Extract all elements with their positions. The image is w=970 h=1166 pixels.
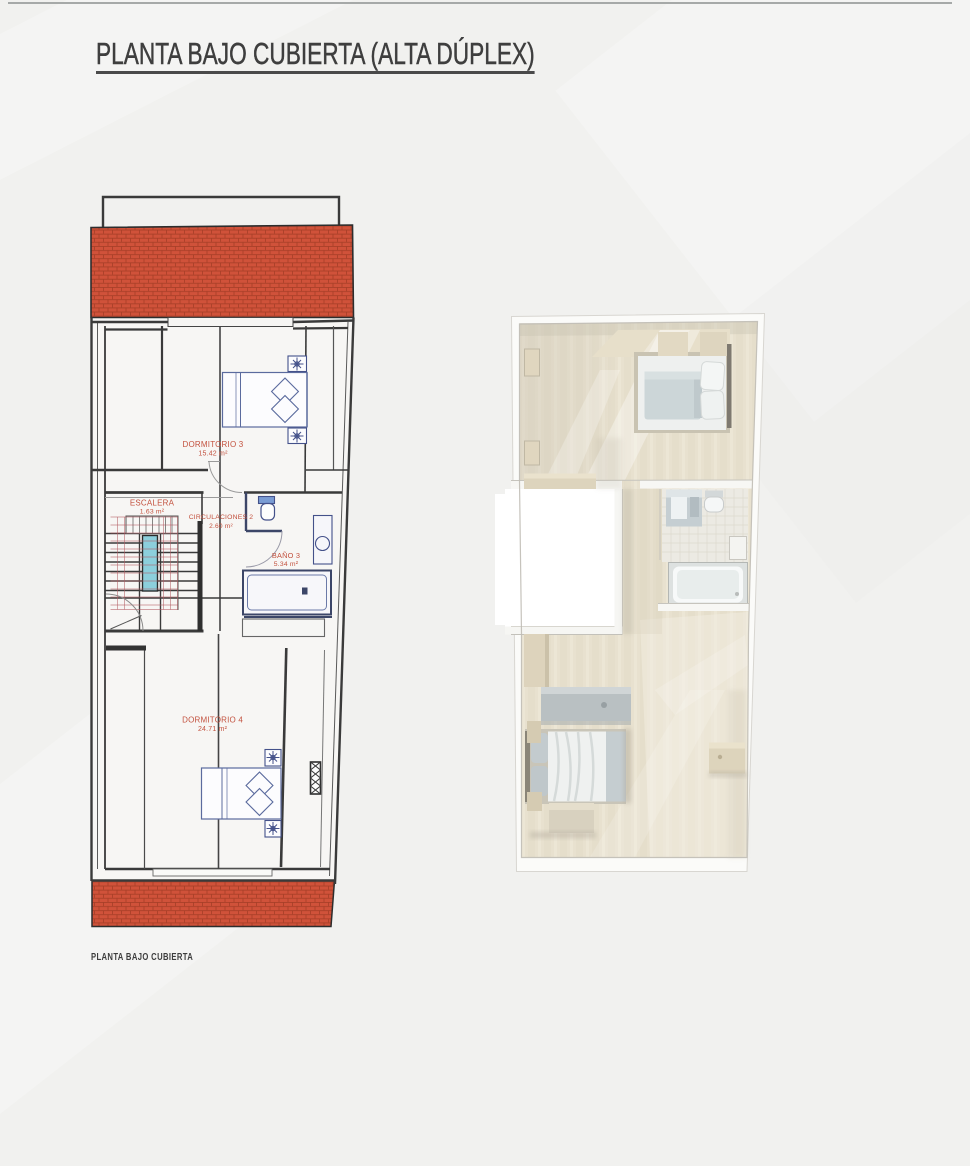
svg-text:ESCALERA: ESCALERA	[130, 499, 175, 508]
svg-text:24.71 m²: 24.71 m²	[198, 726, 228, 733]
svg-text:CIRCULACIONES 2: CIRCULACIONES 2	[189, 514, 254, 521]
svg-text:DORMITORIO 4: DORMITORIO 4	[182, 716, 243, 725]
svg-text:2.60 m²: 2.60 m²	[209, 523, 233, 530]
svg-text:1.63 m²: 1.63 m²	[140, 509, 165, 516]
svg-text:15.42 m²: 15.42 m²	[198, 451, 228, 458]
svg-text:5.34 m²: 5.34 m²	[274, 561, 299, 568]
svg-text:DORMITORIO 3: DORMITORIO 3	[183, 440, 244, 449]
svg-text:BAÑO 3: BAÑO 3	[272, 551, 300, 560]
